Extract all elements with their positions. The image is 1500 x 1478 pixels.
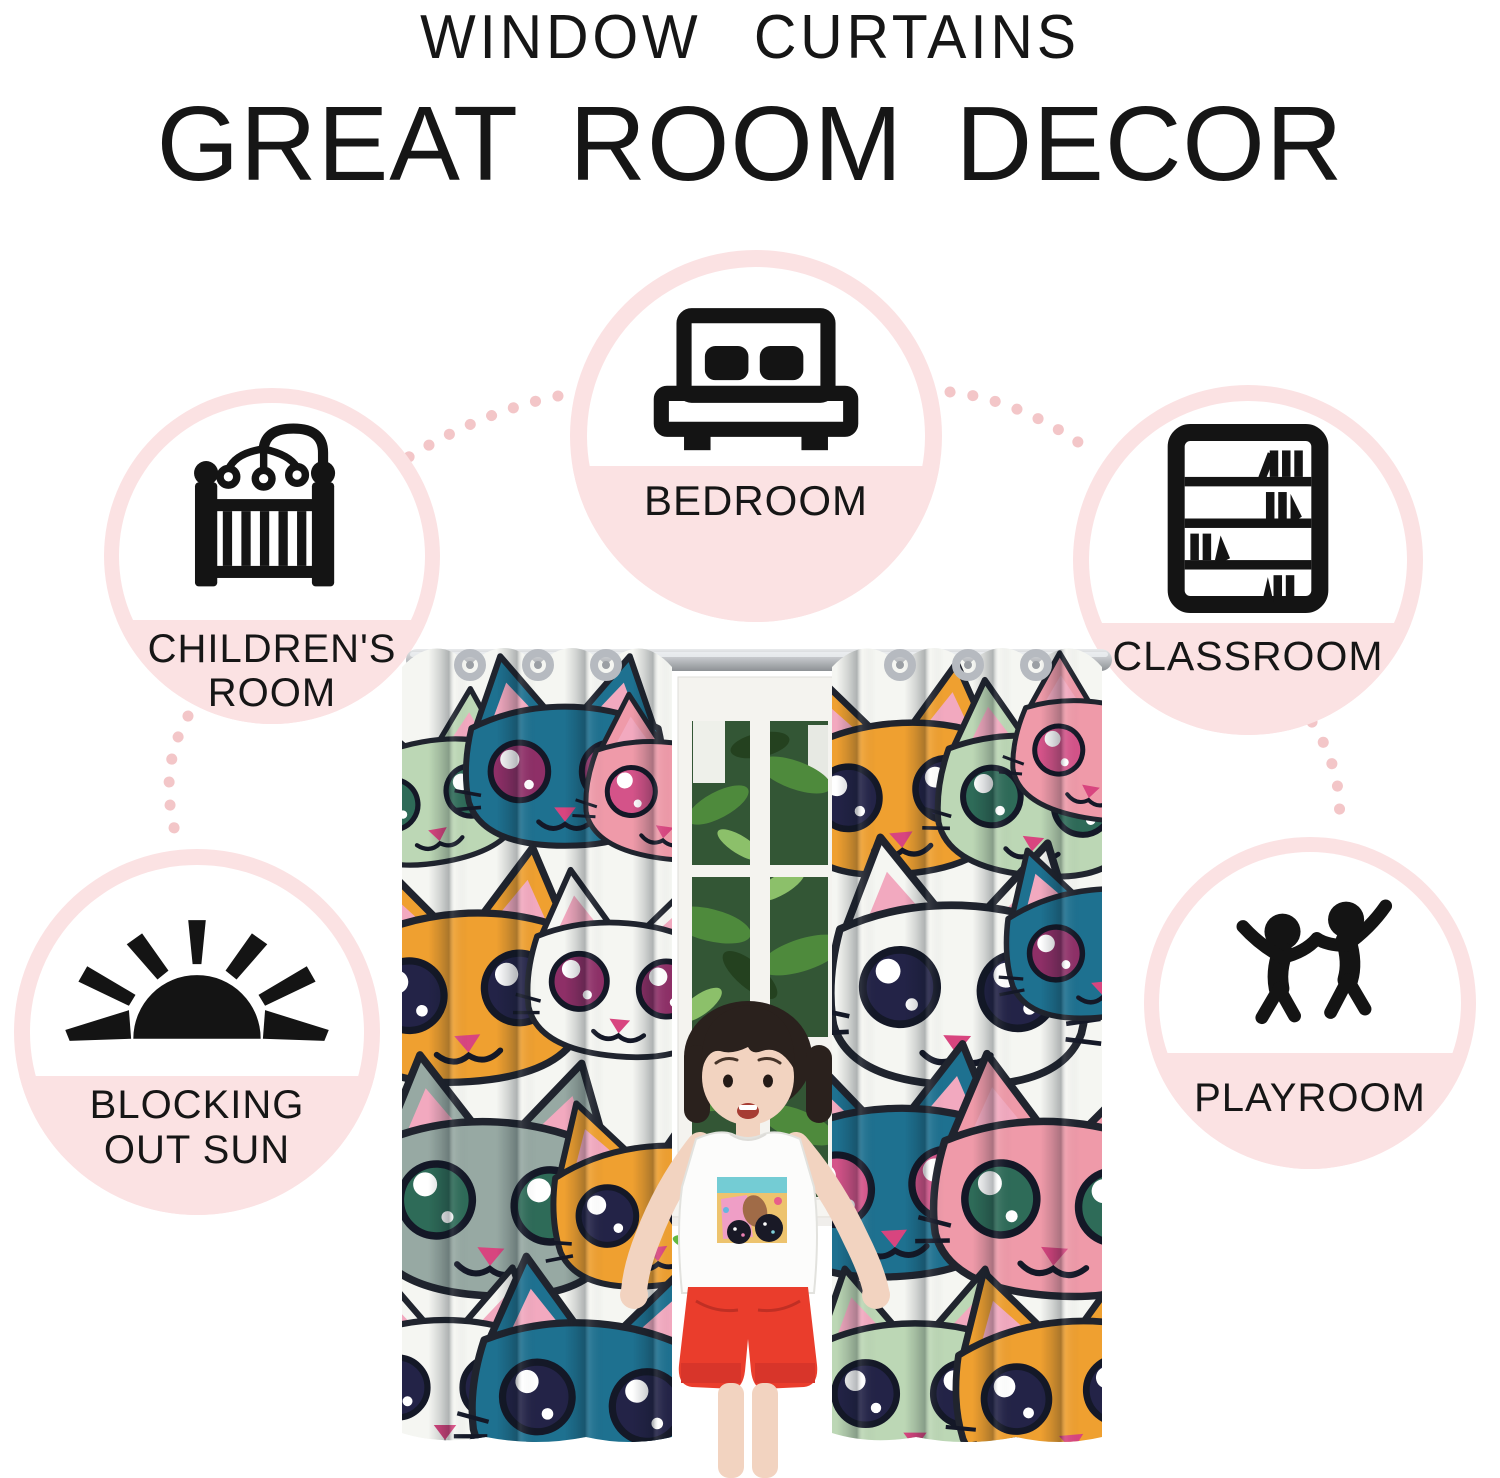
feature-label: BLOCKING OUT SUN — [14, 1083, 380, 1173]
dotted-connector — [169, 716, 188, 842]
feature-label: BEDROOM — [570, 477, 942, 524]
feature-classroom: CLASSROOM — [1073, 385, 1423, 735]
sun-icon — [65, 911, 329, 1050]
product-photo-curtains — [400, 625, 1120, 1478]
dotted-connector — [950, 392, 1092, 452]
feature-blocking-sun: BLOCKING OUT SUN — [14, 849, 380, 1215]
feature-label: PLAYROOM — [1144, 1076, 1476, 1121]
dotted-connector — [1312, 722, 1340, 832]
feature-childrens-room: CHILDREN'S ROOM — [104, 388, 440, 724]
feature-label: CHILDREN'S ROOM — [104, 627, 440, 717]
page-root: WINDOW CURTAINS GREAT ROOM DECOR BEDROOM — [0, 0, 1500, 1478]
dotted-connector — [404, 396, 558, 460]
feature-label-line2: OUT SUN — [14, 1128, 380, 1173]
bed-icon — [652, 302, 860, 458]
crib-icon — [175, 418, 370, 606]
subtitle-text: WINDOW CURTAINS — [38, 2, 1463, 73]
feature-label: CLASSROOM — [1073, 634, 1423, 680]
children-playing-icon — [1207, 887, 1413, 1033]
bookshelf-icon — [1168, 424, 1329, 613]
feature-playroom: PLAYROOM — [1144, 837, 1476, 1169]
shirt-patch — [717, 1177, 787, 1244]
feature-bedroom: BEDROOM — [570, 250, 942, 622]
feature-label-line2: ROOM — [104, 671, 440, 716]
feature-label-line1: BLOCKING — [14, 1083, 380, 1128]
page-title: GREAT ROOM DECOR — [0, 84, 1500, 205]
feature-label-line1: CHILDREN'S — [104, 627, 440, 672]
